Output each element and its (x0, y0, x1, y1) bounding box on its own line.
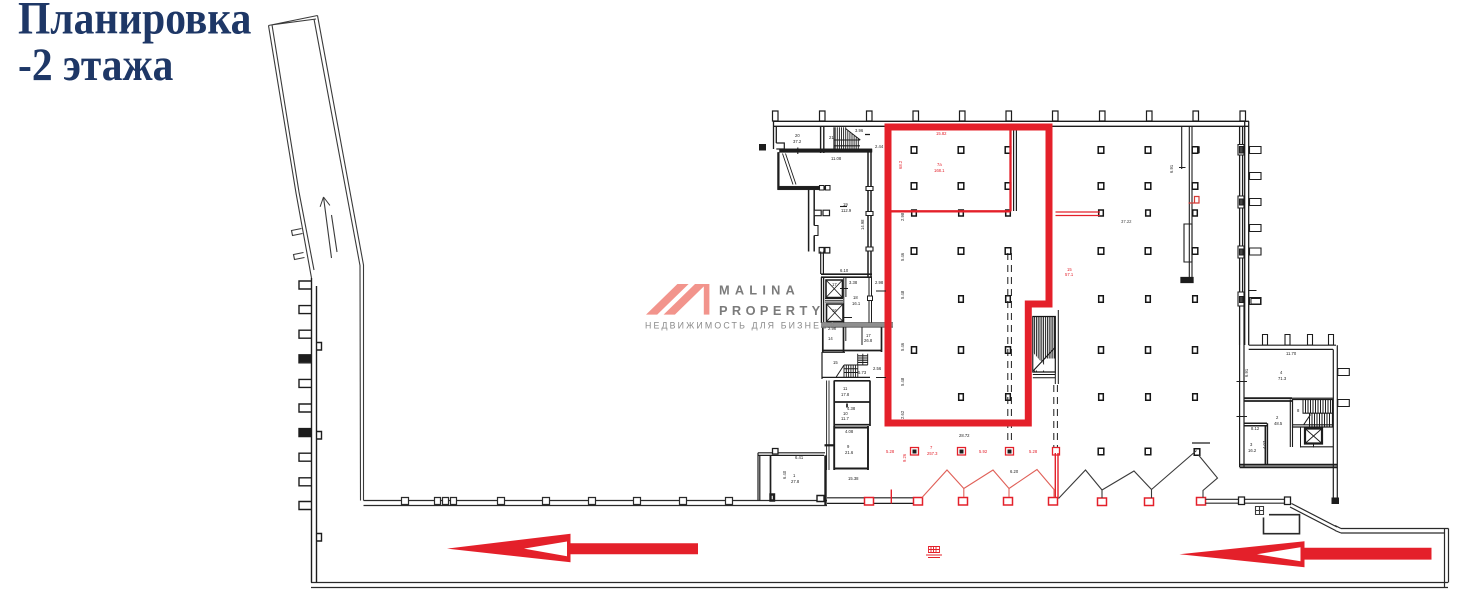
svg-text:26.8: 26.8 (864, 338, 873, 343)
svg-text:2.90: 2.90 (828, 326, 837, 331)
svg-text:3.96: 3.96 (855, 128, 864, 133)
svg-text:257.3: 257.3 (927, 451, 938, 456)
svg-text:6.91: 6.91 (1169, 164, 1174, 173)
svg-text:5.73: 5.73 (858, 370, 867, 375)
svg-text:48.5: 48.5 (1274, 421, 1283, 426)
svg-text:112.9: 112.9 (841, 208, 852, 213)
svg-text:37.22: 37.22 (1121, 219, 1132, 224)
svg-text:16.1: 16.1 (852, 301, 861, 306)
svg-text:20: 20 (795, 133, 800, 138)
svg-text:6.20: 6.20 (1010, 469, 1019, 474)
svg-text:14: 14 (828, 336, 833, 341)
svg-text:4.07: 4.07 (1262, 440, 1267, 449)
svg-text:8: 8 (1297, 408, 1300, 413)
svg-text:2.44: 2.44 (875, 144, 884, 149)
svg-text:14.98: 14.98 (860, 219, 865, 230)
svg-text:5.48: 5.48 (900, 377, 905, 386)
svg-text:5.92: 5.92 (979, 449, 988, 454)
svg-text:21.6: 21.6 (845, 450, 854, 455)
svg-text:57.1: 57.1 (1065, 272, 1074, 277)
svg-text:17: 17 (832, 282, 837, 287)
svg-text:71.3: 71.3 (1278, 376, 1287, 381)
svg-text:6.10: 6.10 (840, 268, 849, 273)
svg-text:37.2: 37.2 (793, 139, 802, 144)
svg-text:3: 3 (1250, 442, 1253, 447)
svg-text:6.91: 6.91 (1244, 368, 1249, 377)
svg-text:8.12: 8.12 (1251, 426, 1260, 431)
svg-text:4.08: 4.08 (845, 429, 854, 434)
svg-text:MALINA: MALINA (719, 283, 800, 298)
svg-text:6.41: 6.41 (795, 455, 804, 460)
svg-text:6.40: 6.40 (782, 470, 787, 479)
svg-text:16.2: 16.2 (1248, 448, 1257, 453)
svg-text:18: 18 (853, 295, 858, 300)
svg-text:4: 4 (1280, 370, 1283, 375)
svg-text:7а: 7а (937, 162, 942, 167)
svg-text:11.70: 11.70 (1286, 351, 1297, 356)
svg-text:5.46: 5.46 (900, 252, 905, 261)
svg-text:27.8: 27.8 (791, 479, 800, 484)
svg-text:15.38: 15.38 (848, 476, 859, 481)
svg-text:2.98: 2.98 (900, 212, 905, 221)
svg-text:3.38: 3.38 (849, 280, 858, 285)
svg-text:PROPERTY: PROPERTY (719, 303, 825, 318)
svg-text:15.82: 15.82 (936, 131, 947, 136)
svg-text:2.98: 2.98 (875, 280, 884, 285)
svg-text:5.28: 5.28 (1029, 449, 1038, 454)
svg-text:5.48: 5.48 (900, 290, 905, 299)
svg-text:9.26: 9.26 (902, 453, 907, 462)
svg-text:2.56: 2.56 (873, 366, 882, 371)
svg-text:21: 21 (829, 135, 834, 140)
svg-text:НЕДВИЖИМОСТЬ ДЛЯ БИЗНЕСА: НЕДВИЖИМОСТЬ ДЛЯ БИЗНЕСА (645, 321, 837, 331)
svg-text:19: 19 (843, 202, 848, 207)
svg-text:1: 1 (793, 473, 796, 478)
svg-text:5.46: 5.46 (900, 342, 905, 351)
svg-text:5.28: 5.28 (886, 449, 895, 454)
svg-text:15: 15 (833, 360, 838, 365)
svg-text:168.1: 168.1 (934, 168, 945, 173)
svg-text:28.72: 28.72 (959, 433, 970, 438)
svg-text:11.08: 11.08 (831, 156, 842, 161)
svg-text:17.8: 17.8 (841, 392, 850, 397)
svg-text:11: 11 (843, 386, 848, 391)
svg-text:2: 2 (1276, 415, 1279, 420)
svg-text:2.62: 2.62 (900, 410, 905, 419)
svg-text:4.38: 4.38 (847, 406, 856, 411)
svg-text:11.7: 11.7 (841, 416, 850, 421)
svg-text:9: 9 (847, 444, 850, 449)
svg-text:68.2: 68.2 (898, 160, 903, 169)
svg-text:16: 16 (832, 308, 837, 313)
svg-text:7: 7 (930, 445, 933, 450)
